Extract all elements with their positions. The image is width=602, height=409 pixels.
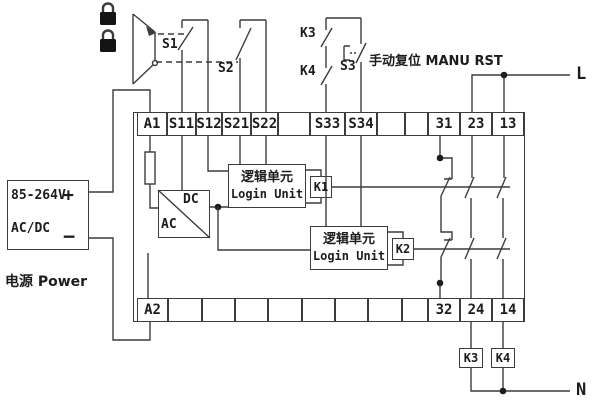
- k4-contact-label: K4: [300, 64, 316, 79]
- terminal-s33: S33: [310, 112, 345, 136]
- power-voltage: 85-264V: [11, 188, 66, 203]
- terminal-23: 23: [460, 112, 492, 136]
- terminal-blank: [377, 112, 405, 136]
- relay-k4-coil: K4: [491, 348, 515, 368]
- s2-label: S2: [218, 61, 234, 76]
- terminal-blank: [278, 112, 310, 136]
- padlock-icon: [100, 4, 116, 53]
- terminal-s11: S11: [167, 112, 196, 136]
- terminal-s21: S21: [222, 112, 251, 136]
- logic-unit-1: 逻辑单元 Login Unit: [228, 164, 306, 208]
- power-caption: 电源 Power: [5, 271, 87, 291]
- estop-actuator-icon: [133, 14, 158, 84]
- relay-k2-coil: K2: [392, 238, 414, 260]
- terminal-s22: S22: [251, 112, 278, 136]
- s3-contact: [356, 18, 366, 112]
- terminal-blank: [302, 298, 335, 322]
- terminal-blank: [268, 298, 302, 322]
- terminal-blank: [168, 298, 202, 322]
- terminal-s12: S12: [196, 112, 222, 136]
- logic-unit-2-cn: 逻辑单元: [323, 232, 375, 248]
- manual-reset-label: 手动复位 MANU RST: [369, 50, 503, 69]
- k3-contact-label: K3: [300, 26, 316, 41]
- terminal-a2: A2: [137, 298, 168, 322]
- terminal-24: 24: [460, 298, 492, 322]
- terminal-32: 32: [428, 298, 460, 322]
- plus-sign: +: [63, 185, 74, 206]
- logic-unit-1-cn: 逻辑单元: [241, 170, 293, 186]
- logic-unit-2-en: Login Unit: [313, 249, 385, 264]
- relay-k1-coil: K1: [310, 176, 332, 198]
- terminal-blank: [202, 298, 235, 322]
- s2-contact: [236, 20, 266, 112]
- terminal-13: 13: [492, 112, 524, 136]
- terminal-14: 14: [492, 298, 524, 322]
- logic-unit-2: 逻辑单元 Login Unit: [310, 226, 388, 270]
- terminal-blank: [368, 298, 402, 322]
- terminal-s34: S34: [345, 112, 377, 136]
- s1-label: S1: [162, 37, 178, 52]
- converter-dc-label: DC: [183, 192, 199, 207]
- terminal-blank: [405, 112, 428, 136]
- converter-ac-label: AC: [161, 217, 177, 232]
- terminal-blank: [402, 298, 428, 322]
- neutral-wire: [471, 322, 570, 391]
- live-wire: [472, 75, 570, 112]
- s3-label: S3: [340, 59, 356, 74]
- terminal-31: 31: [428, 112, 460, 136]
- minus-sign: −: [63, 224, 75, 248]
- neutral-line-label: N: [576, 380, 586, 400]
- terminal-blank: [335, 298, 368, 322]
- wiring-diagram: A1 S11 S12 S21 S22 S33 S34 31 23 13 A2 3…: [0, 0, 602, 409]
- live-line-label: L: [576, 64, 586, 84]
- power-type: AC/DC: [11, 221, 50, 236]
- terminal-a1: A1: [137, 112, 167, 136]
- relay-k3-coil: K3: [459, 348, 483, 368]
- logic-unit-1-en: Login Unit: [231, 187, 303, 202]
- terminal-blank: [235, 298, 268, 322]
